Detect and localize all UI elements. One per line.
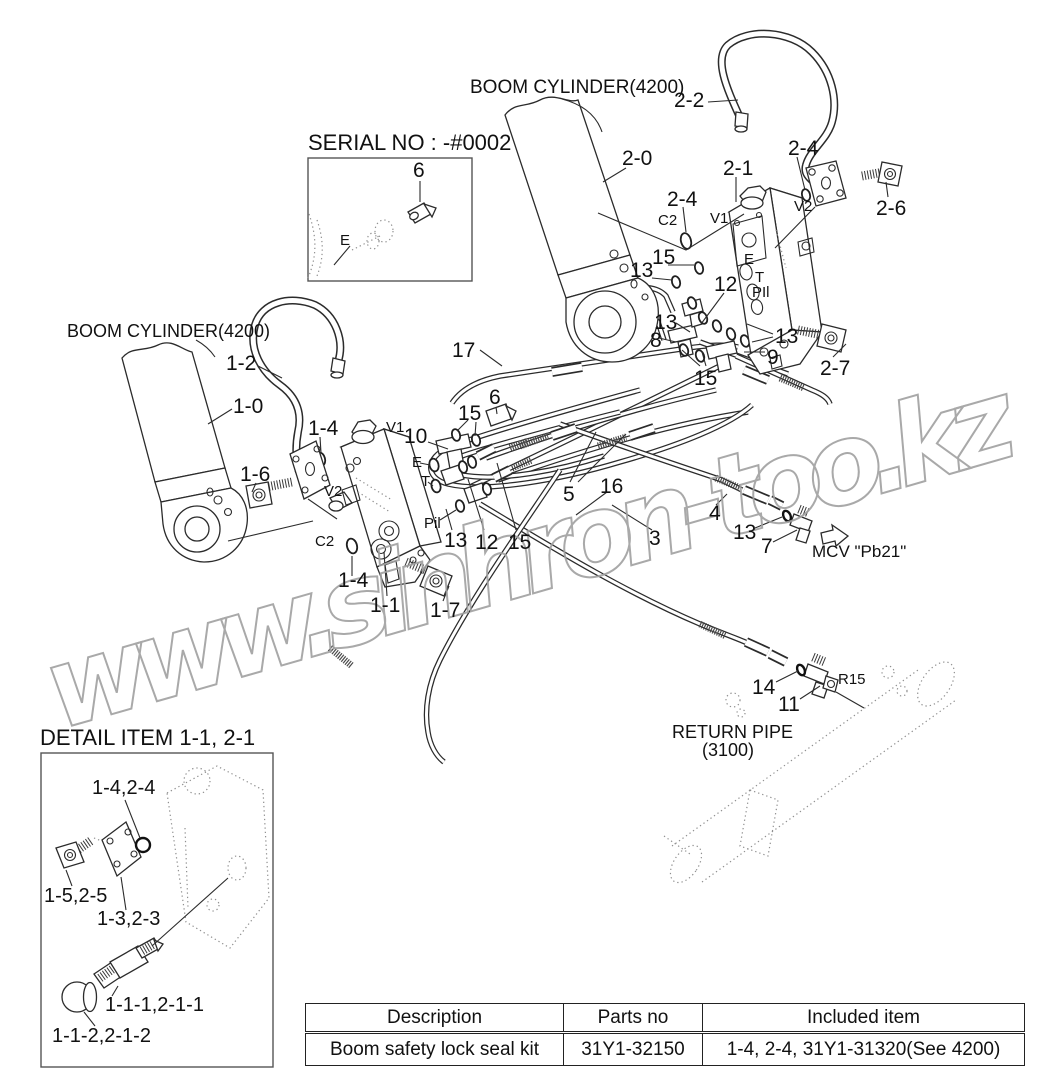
detail-callout-label: 1-5,2-5 [44, 886, 107, 906]
parts-table: Description Parts no Included item Boom … [305, 1003, 1025, 1066]
detail-callout-label: 1-1-2,2-1-2 [52, 1026, 151, 1046]
detail-callout-label: 1-4,2-4 [92, 778, 155, 798]
callout-label: 8 [650, 330, 662, 351]
callout-label: 2-2 [674, 90, 704, 111]
callout-label: 13 [444, 530, 467, 551]
callout-label: 15 [458, 403, 481, 424]
port-label: V1 [386, 420, 404, 435]
parts-diagram-page: .w{fill:#fff;stroke:#2b2b2b;stroke-width… [0, 0, 1055, 1092]
port-label: T [421, 474, 430, 489]
callout-label: 2-7 [820, 358, 850, 379]
port-label: V2 [324, 484, 342, 499]
callout-label: 2-1 [723, 158, 753, 179]
callout-label: 15 [508, 532, 531, 553]
callout-label: 17 [452, 340, 475, 361]
port-label: Pil [424, 516, 441, 531]
callout-label: 9 [767, 347, 779, 368]
callout-label: 2-4 [788, 138, 818, 159]
return-pipe-label: RETURN PIPE [672, 723, 784, 741]
callout-label: 12 [475, 532, 498, 553]
port-label: C2 [315, 534, 334, 549]
port-label: C2 [658, 213, 677, 228]
callout-label: 1-2 [226, 353, 256, 374]
table-header-description: Description [306, 1004, 564, 1033]
serial-box-art [308, 158, 472, 281]
callout-label: 16 [600, 476, 623, 497]
callout-label: 2-6 [876, 198, 906, 219]
table-header-parts-no: Parts no [564, 1004, 703, 1033]
port-label: R15 [838, 672, 866, 687]
detail-callout-label: 1-1-1,2-1-1 [105, 995, 204, 1015]
callout-label: 4 [709, 503, 721, 524]
callout-label: 1-4 [308, 418, 338, 439]
callout-label: 3 [649, 528, 661, 549]
port-label: E [412, 455, 422, 470]
port-label: E [340, 233, 350, 248]
boom-cylinder-left-art [122, 343, 247, 562]
callout-label: 2-0 [622, 148, 652, 169]
boom-cylinder-top-art [505, 97, 658, 362]
callout-label: 1-0 [233, 396, 263, 417]
callout-label: 13 [775, 326, 798, 347]
callout-label: 1-6 [240, 464, 270, 485]
callout-label: 2-4 [667, 189, 697, 210]
callout-label: 12 [714, 274, 737, 295]
serial-no-label: SERIAL NO : -#0002 [308, 132, 511, 154]
cell-parts-no: 31Y1-32150 [564, 1033, 703, 1066]
callout-label: 14 [752, 677, 775, 698]
detail-callout-label: 1-3,2-3 [97, 909, 160, 929]
port-label: V1 [710, 211, 728, 226]
port-label: E [744, 252, 754, 267]
port-label: T [755, 270, 764, 285]
callout-label: 11 [778, 694, 800, 715]
detail-title: DETAIL ITEM 1-1, 2-1 [40, 727, 255, 749]
return-pipe-sub-label: (3100) [672, 741, 784, 759]
callout-label: 13 [630, 260, 653, 281]
callout-label: 7 [761, 536, 773, 557]
callout-label: 1-4 [338, 570, 368, 591]
port-label: PIl [752, 285, 770, 300]
callout-label: 15 [652, 247, 675, 268]
boom-cylinder-left-label: BOOM CYLINDER(4200) [67, 322, 270, 340]
callout-label: 15 [694, 368, 717, 389]
table-row: Boom safety lock seal kit 31Y1-32150 1-4… [306, 1033, 1025, 1066]
callout-label: 10 [404, 426, 427, 447]
cell-included-item: 1-4, 2-4, 31Y1-31320(See 4200) [703, 1033, 1025, 1066]
cell-description: Boom safety lock seal kit [306, 1033, 564, 1066]
callout-label: 5 [563, 484, 575, 505]
port-label: V2 [794, 199, 812, 214]
callout-label: 1-1 [370, 595, 400, 616]
callout-label: 6 [413, 160, 425, 181]
callout-label: 6 [489, 387, 501, 408]
boom-cylinder-top-label: BOOM CYLINDER(4200) [470, 78, 684, 97]
callout-label: 13 [733, 522, 756, 543]
callout-label: 1-7 [430, 600, 460, 621]
mcv-label: MCV "Pb21" [812, 543, 906, 560]
table-header-included-item: Included item [703, 1004, 1025, 1033]
